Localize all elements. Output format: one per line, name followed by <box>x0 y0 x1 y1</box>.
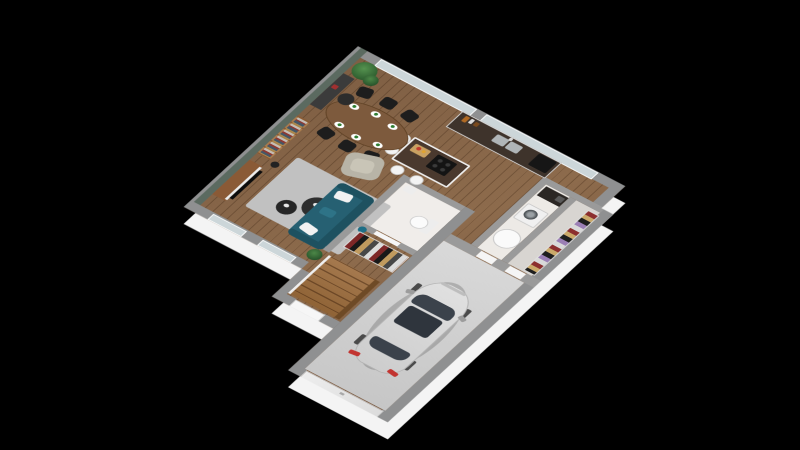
floorplan-3d-render <box>0 0 800 450</box>
floorplan-top-layer <box>81 46 653 450</box>
